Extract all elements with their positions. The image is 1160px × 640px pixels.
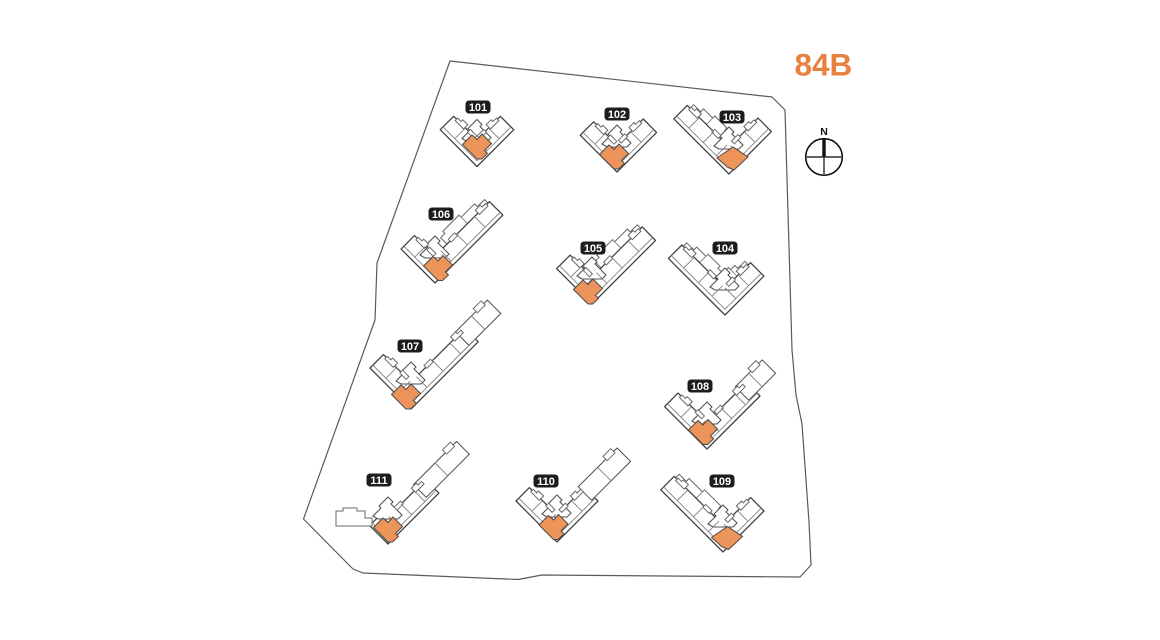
svg-text:108: 108 (691, 381, 709, 393)
svg-text:84B: 84B (795, 47, 853, 83)
svg-text:111: 111 (370, 475, 387, 487)
svg-text:106: 106 (432, 209, 450, 221)
svg-text:109: 109 (713, 476, 731, 488)
svg-text:101: 101 (469, 102, 487, 114)
svg-text:110: 110 (537, 476, 555, 488)
svg-text:107: 107 (401, 341, 419, 353)
svg-text:102: 102 (608, 109, 626, 121)
svg-text:105: 105 (584, 243, 602, 255)
svg-text:103: 103 (723, 112, 741, 124)
svg-text:N: N (820, 126, 828, 138)
svg-text:104: 104 (716, 243, 735, 255)
